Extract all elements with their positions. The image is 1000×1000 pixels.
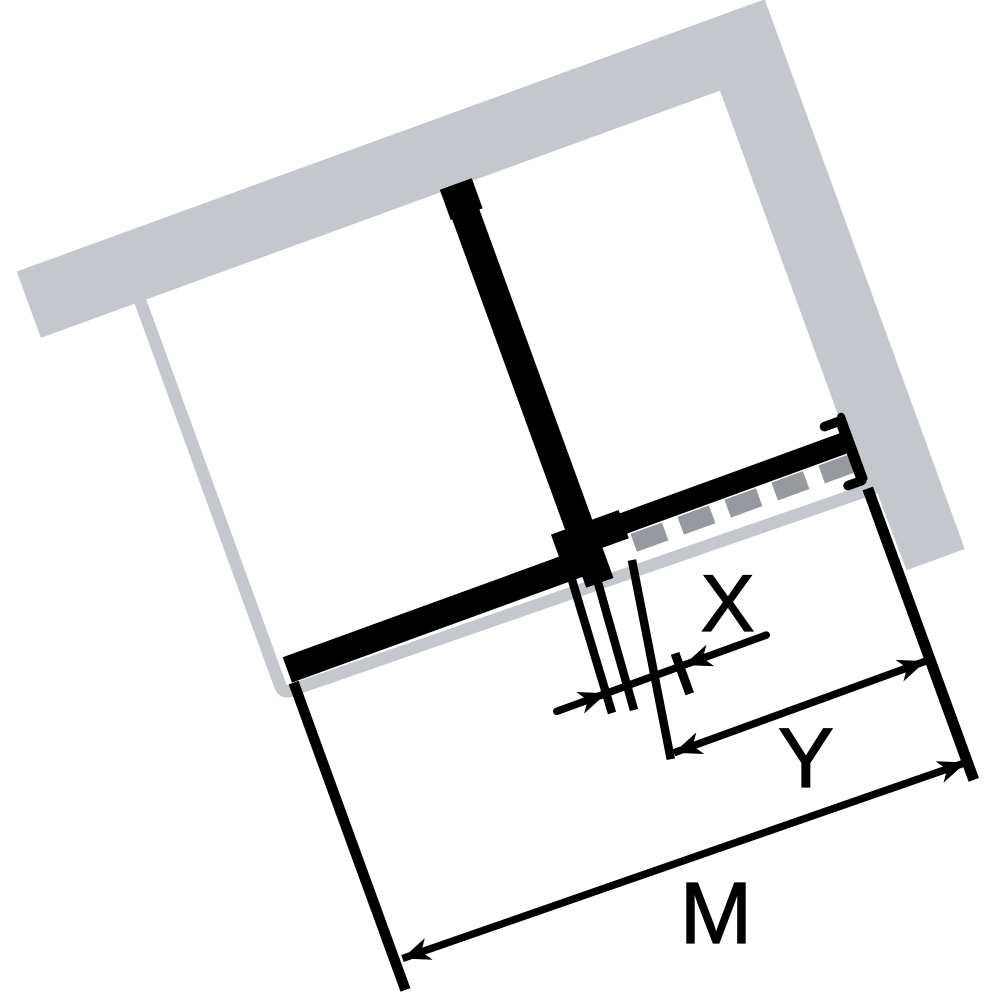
- svg-text:X: X: [701, 559, 755, 649]
- svg-text:M: M: [680, 865, 752, 962]
- svg-text:Y: Y: [778, 711, 834, 805]
